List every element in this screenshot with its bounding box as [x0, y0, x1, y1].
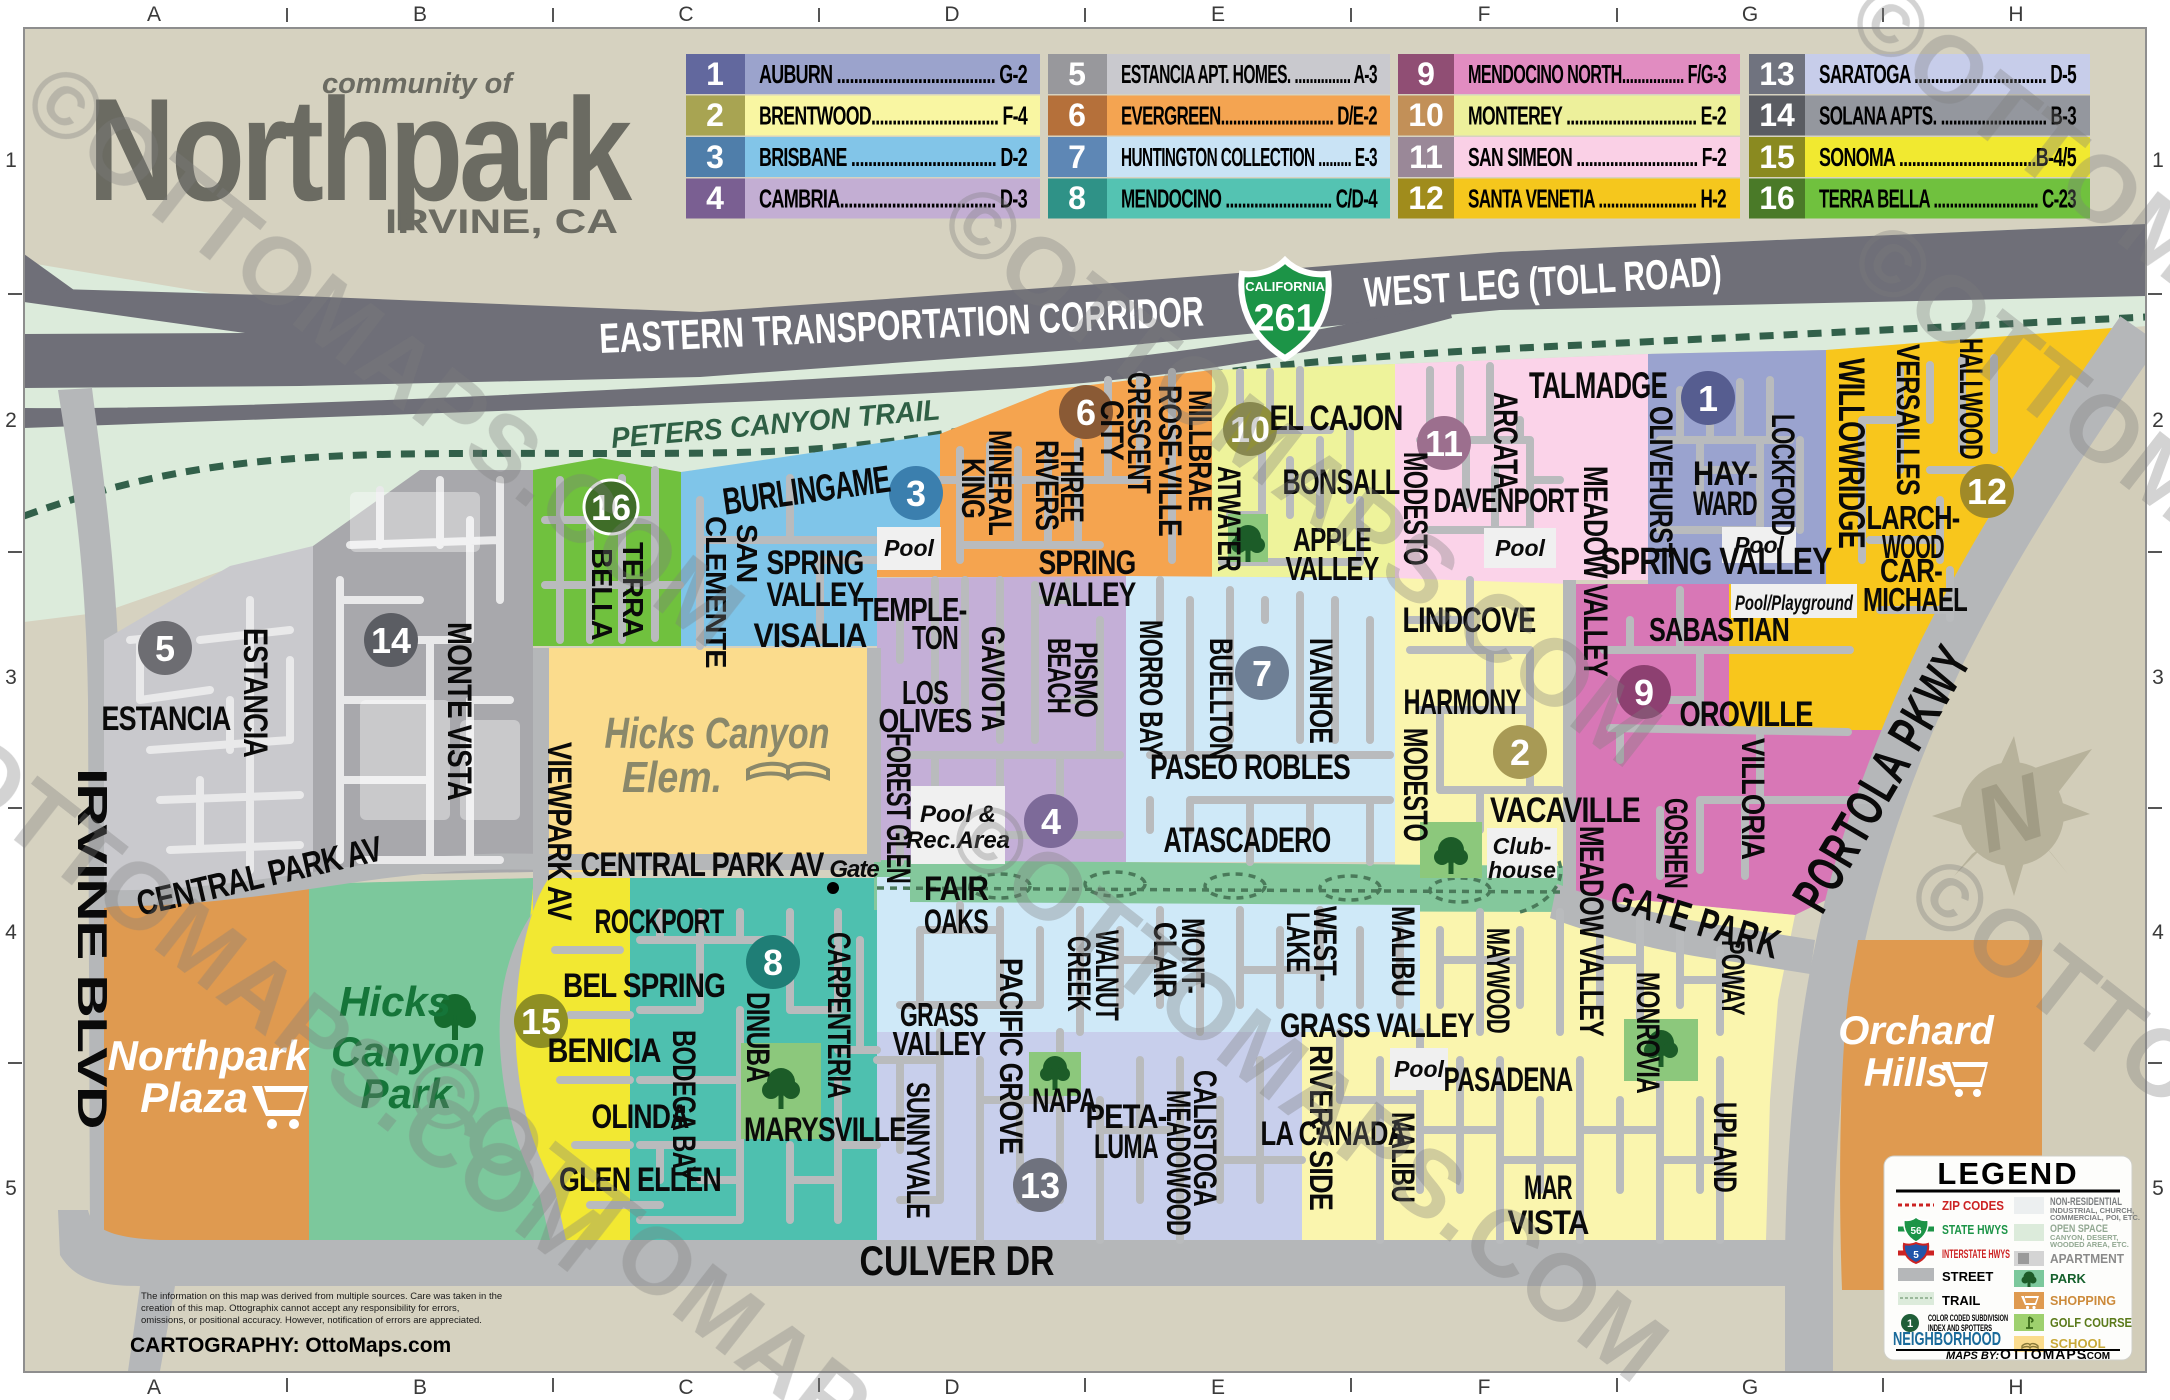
svg-text:C: C: [678, 1376, 693, 1399]
svg-text:Pool: Pool: [884, 535, 934, 561]
svg-text:12: 12: [1408, 180, 1444, 216]
svg-text:INTERSTATE HWYS: INTERSTATE HWYS: [1942, 1247, 2010, 1261]
svg-text:Hills: Hills: [1864, 1051, 1948, 1095]
svg-text:Pool/Playground: Pool/Playground: [1735, 592, 1854, 615]
svg-text:VACAVILLE: VACAVILLE: [1490, 790, 1640, 830]
svg-text:PASEO ROBLES: PASEO ROBLES: [1150, 747, 1350, 787]
svg-text:Hicks Canyon: Hicks Canyon: [605, 709, 830, 758]
svg-text:CULVER DR: CULVER DR: [860, 1237, 1055, 1284]
svg-text:WOODED AREA, ETC.: WOODED AREA, ETC.: [2050, 1240, 2129, 1249]
svg-text:Plaza: Plaza: [140, 1074, 247, 1121]
svg-text:VISALIA: VISALIA: [754, 617, 867, 655]
svg-text:5: 5: [1913, 1250, 1919, 1261]
svg-text:7: 7: [1252, 653, 1272, 694]
svg-text:STATE HWYS: STATE HWYS: [1942, 1222, 2008, 1237]
svg-text:IRVINE, CA: IRVINE, CA: [385, 203, 618, 241]
svg-text:SHOPPING: SHOPPING: [2050, 1293, 2116, 1308]
svg-text:ATASCADERO: ATASCADERO: [1164, 820, 1331, 860]
svg-text:13: 13: [1759, 56, 1795, 92]
svg-text:BENICIA: BENICIA: [548, 1032, 661, 1070]
svg-text:LEGEND: LEGEND: [1937, 1156, 2078, 1191]
svg-text:1: 1: [706, 56, 724, 92]
svg-text:FOREST GLEN: FOREST GLEN: [879, 733, 917, 883]
svg-text:SPRING VALLEY: SPRING VALLEY: [1601, 541, 1833, 583]
svg-text:3: 3: [2152, 666, 2164, 689]
svg-text:8: 8: [763, 942, 783, 983]
svg-text:OLIVEHURST: OLIVEHURST: [1643, 406, 1679, 558]
svg-text:BEL SPRING: BEL SPRING: [563, 967, 725, 1005]
svg-text:MENDOCINO NORTH...............: MENDOCINO NORTH................ F/G-3: [1468, 59, 1726, 89]
svg-text:MICHAEL: MICHAEL: [1863, 581, 1968, 618]
svg-text:VALLEY: VALLEY: [1039, 576, 1137, 614]
svg-text:OAKS: OAKS: [924, 903, 988, 941]
svg-text:A: A: [147, 3, 161, 26]
svg-text:VIEWPARK AV: VIEWPARK AV: [540, 742, 578, 921]
svg-text:5: 5: [2152, 1177, 2164, 1200]
svg-text:TALMADGE: TALMADGE: [1529, 365, 1667, 406]
svg-text:H: H: [2008, 1376, 2023, 1399]
svg-text:MEADOW VALLEY: MEADOW VALLEY: [1572, 826, 1610, 1037]
svg-text:PARK: PARK: [2050, 1271, 2086, 1286]
svg-text:261: 261: [1253, 298, 1316, 340]
svg-text:omissions, or positional accur: omissions, or positional accuracy. Howev…: [141, 1315, 482, 1326]
svg-text:ZIP CODES: ZIP CODES: [1942, 1198, 2004, 1213]
svg-text:BODEGA BAY: BODEGA BAY: [666, 1030, 702, 1181]
svg-text:4: 4: [5, 921, 17, 944]
svg-text:WILLOWRIDGE: WILLOWRIDGE: [1831, 358, 1872, 548]
svg-text:4: 4: [706, 180, 724, 216]
svg-text:MONROVIA: MONROVIA: [1630, 972, 1666, 1094]
svg-text:OTTOMAPS: OTTOMAPS: [2000, 1346, 2087, 1362]
svg-text:D: D: [944, 1376, 959, 1399]
svg-text:8: 8: [1068, 180, 1086, 216]
svg-text:Gate: Gate: [829, 856, 879, 883]
svg-text:CITY: CITY: [1094, 400, 1130, 460]
svg-text:MARYSVILLE: MARYSVILLE: [744, 1111, 906, 1149]
svg-text:6: 6: [1076, 392, 1096, 433]
svg-text:16: 16: [1759, 180, 1795, 216]
svg-text:ARCATA: ARCATA: [1486, 392, 1524, 489]
svg-text:MONTE VISTA: MONTE VISTA: [440, 622, 478, 800]
svg-text:H: H: [2008, 3, 2023, 26]
svg-text:5: 5: [155, 628, 175, 669]
svg-text:Pool: Pool: [1394, 1056, 1444, 1082]
svg-text:MONTEREY .....................: MONTEREY ...............................…: [1468, 101, 1726, 131]
svg-text:VALLEY: VALLEY: [767, 576, 865, 614]
svg-text:ESTANCIA APT. HOMES. .........: ESTANCIA APT. HOMES. ............... A-3: [1121, 59, 1377, 89]
svg-text:D: D: [944, 3, 959, 26]
svg-text:UPLAND: UPLAND: [1707, 1102, 1743, 1192]
svg-text:3: 3: [906, 473, 926, 514]
svg-text:10: 10: [1408, 97, 1444, 133]
svg-text:5: 5: [5, 1177, 17, 1200]
svg-text:Elem.: Elem.: [622, 753, 722, 802]
svg-text:ROCKPORT: ROCKPORT: [595, 903, 725, 941]
svg-text:CARTOGRAPHY: OttoMaps.com: CARTOGRAPHY: OttoMaps.com: [130, 1334, 451, 1357]
svg-text:Club-: Club-: [1493, 833, 1552, 859]
svg-text:MEADOWOOD: MEADOWOOD: [1159, 1090, 1197, 1235]
svg-text:14: 14: [371, 620, 411, 661]
svg-text:The information on this map wa: The information on this map was derived …: [141, 1291, 502, 1302]
svg-text:6: 6: [1068, 97, 1086, 133]
svg-text:LAKE: LAKE: [1280, 912, 1316, 972]
svg-text:ESTANCIA: ESTANCIA: [102, 700, 231, 738]
svg-text:KING: KING: [955, 458, 991, 518]
svg-text:EVERGREEN.....................: EVERGREEN............................ D/…: [1121, 101, 1377, 131]
svg-text:E: E: [1211, 1376, 1225, 1399]
svg-text:.COM: .COM: [2084, 1351, 2110, 1362]
svg-text:12: 12: [1967, 471, 2007, 512]
svg-text:MODESTO: MODESTO: [1396, 728, 1434, 841]
svg-text:TON: TON: [912, 620, 958, 657]
svg-text:PASADENA: PASADENA: [1444, 1061, 1573, 1099]
svg-text:GAVIOTA: GAVIOTA: [975, 626, 1011, 732]
svg-text:C: C: [678, 3, 693, 26]
svg-text:13: 13: [1020, 1165, 1060, 1206]
svg-text:NEIGHBORHOOD: NEIGHBORHOOD: [1893, 1329, 2001, 1349]
svg-text:CENTRAL PARK AV: CENTRAL PARK AV: [581, 846, 825, 884]
svg-text:3: 3: [5, 666, 17, 689]
svg-text:SUNNYVALE: SUNNYVALE: [900, 1082, 936, 1218]
svg-text:1: 1: [5, 149, 17, 172]
svg-text:MALIBU: MALIBU: [1385, 906, 1421, 996]
svg-text:3: 3: [706, 139, 724, 175]
svg-text:B: B: [413, 3, 427, 26]
svg-text:7: 7: [1068, 139, 1086, 175]
svg-text:SAN SIMEON ...................: SAN SIMEON .............................…: [1468, 142, 1726, 172]
svg-text:TRAIL: TRAIL: [1942, 1293, 1980, 1308]
svg-text:AUBURN .......................: AUBURN .................................…: [759, 59, 1027, 89]
svg-text:VALLEY: VALLEY: [893, 1026, 987, 1063]
svg-text:MORRO BAY: MORRO BAY: [1133, 620, 1169, 756]
svg-text:STREET: STREET: [1942, 1269, 1993, 1284]
svg-text:HUNTINGTON COLLECTION ........: HUNTINGTON COLLECTION ......... E-3: [1121, 142, 1377, 172]
svg-text:IVANHOE: IVANHOE: [1303, 638, 1339, 743]
svg-text:PACIFIC GROVE: PACIFIC GROVE: [993, 958, 1029, 1154]
svg-text:GOLF COURSE: GOLF COURSE: [2050, 1315, 2132, 1330]
svg-text:G: G: [1742, 1376, 1758, 1399]
svg-text:WARD: WARD: [1693, 485, 1757, 523]
svg-text:BEACH: BEACH: [1041, 638, 1077, 713]
svg-text:GOSHEN: GOSHEN: [1658, 798, 1694, 888]
svg-text:VILLORIA: VILLORIA: [1735, 738, 1771, 860]
svg-text:Pool: Pool: [1734, 532, 1784, 558]
svg-text:OROVILLE: OROVILLE: [1680, 694, 1813, 734]
svg-text:APARTMENT: APARTMENT: [2050, 1251, 2124, 1266]
svg-text:MAYWOOD: MAYWOOD: [1480, 928, 1516, 1033]
svg-text:COMMERCIAL, POI, ETC.: COMMERCIAL, POI, ETC.: [2050, 1213, 2140, 1222]
svg-text:15: 15: [1759, 139, 1795, 175]
svg-text:Pool: Pool: [1495, 535, 1545, 561]
svg-text:F: F: [1478, 1376, 1491, 1399]
svg-text:14: 14: [1759, 97, 1795, 133]
svg-text:56: 56: [1910, 1226, 1922, 1237]
svg-text:DINUBA: DINUBA: [740, 992, 776, 1083]
svg-text:F: F: [1478, 3, 1491, 26]
svg-text:11: 11: [1409, 139, 1443, 175]
svg-text:POWAY: POWAY: [1715, 940, 1751, 1015]
svg-text:2: 2: [5, 409, 17, 432]
svg-text:CARPENTERIA: CARPENTERIA: [821, 932, 857, 1099]
svg-text:creation of this map. Ottograp: creation of this map. Ottographix cannot…: [141, 1303, 459, 1314]
svg-text:Orchard: Orchard: [1838, 1009, 1995, 1053]
svg-text:BRENTWOOD.....................: BRENTWOOD.............................. …: [759, 101, 1028, 131]
svg-text:LOCKFORD: LOCKFORD: [1765, 414, 1801, 535]
svg-text:ESTANCIA: ESTANCIA: [236, 628, 274, 757]
svg-text:VERSAILLES: VERSAILLES: [1890, 344, 1926, 495]
svg-text:E: E: [1211, 3, 1225, 26]
svg-text:2: 2: [706, 97, 724, 133]
svg-text:MENDOCINO ....................: MENDOCINO .......................... C/D…: [1121, 184, 1378, 214]
svg-text:G: G: [1742, 3, 1758, 26]
svg-text:CALIFORNIA: CALIFORNIA: [1245, 279, 1324, 294]
svg-text:SANTA VENETIA ................: SANTA VENETIA ........................ H…: [1468, 184, 1726, 214]
svg-text:SABASTIAN: SABASTIAN: [1649, 612, 1789, 649]
svg-text:house: house: [1488, 857, 1556, 883]
svg-text:A: A: [147, 1376, 161, 1399]
svg-text:LUMA: LUMA: [1094, 1128, 1158, 1166]
svg-text:9: 9: [1417, 56, 1435, 92]
svg-text:5: 5: [1068, 56, 1086, 92]
svg-text:MAPS BY:: MAPS BY:: [1946, 1350, 2000, 1362]
svg-text:2: 2: [1510, 732, 1530, 773]
svg-text:1: 1: [1698, 378, 1718, 419]
svg-text:4: 4: [2152, 921, 2164, 944]
svg-text:BUELLTON: BUELLTON: [1203, 638, 1239, 759]
svg-text:B: B: [413, 1376, 427, 1399]
svg-text:RIVERS: RIVERS: [1029, 440, 1065, 530]
